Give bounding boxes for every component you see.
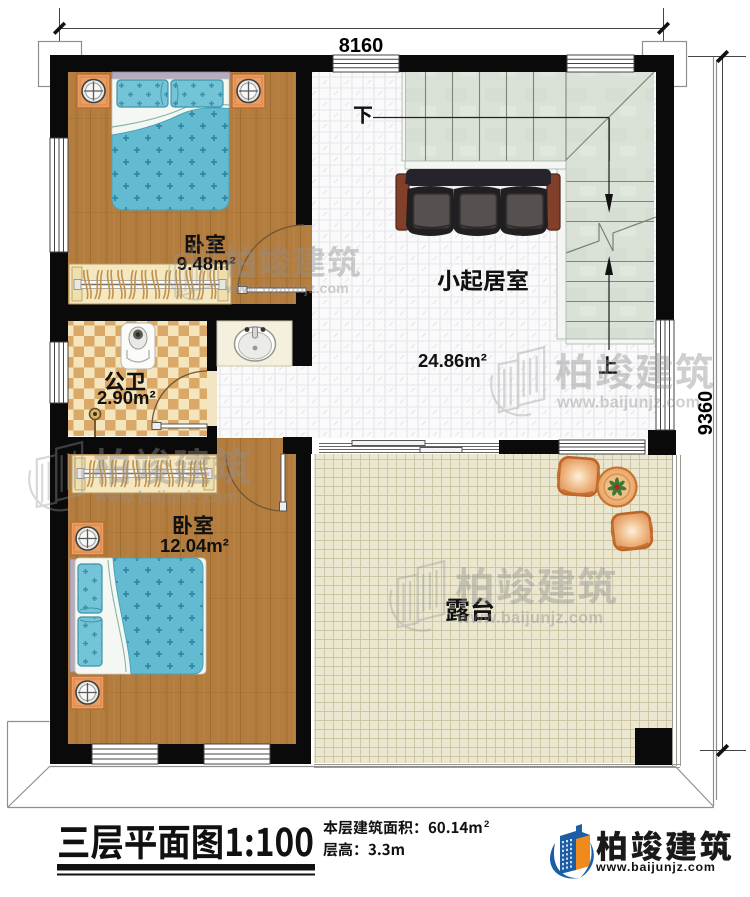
svg-text:www.baijunjz.com: www.baijunjz.com xyxy=(456,609,603,627)
svg-text:www.baijunjz.com: www.baijunjz.com xyxy=(556,394,700,412)
svg-text:24.86m²: 24.86m² xyxy=(418,350,487,371)
svg-text:www.baijunjz.com: www.baijunjz.com xyxy=(225,280,349,296)
svg-text:2: 2 xyxy=(484,819,489,830)
svg-text:8160: 8160 xyxy=(339,35,384,57)
svg-text:12.04m²: 12.04m² xyxy=(160,535,229,556)
svg-text:2.90m²: 2.90m² xyxy=(97,387,156,408)
svg-text:www.baijunjz.com: www.baijunjz.com xyxy=(94,489,238,507)
svg-text:www.baijunjz.com: www.baijunjz.com xyxy=(595,860,716,874)
